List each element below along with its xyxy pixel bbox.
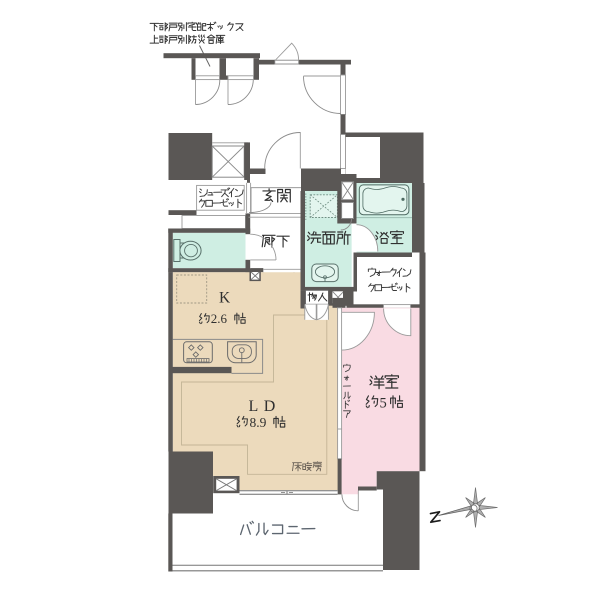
- svg-text:8.9: 8.9: [250, 415, 267, 430]
- svg-text:K: K: [219, 290, 231, 307]
- svg-text:5: 5: [380, 396, 387, 412]
- svg-text:2.6: 2.6: [211, 311, 228, 326]
- svg-text:LD: LD: [249, 398, 281, 415]
